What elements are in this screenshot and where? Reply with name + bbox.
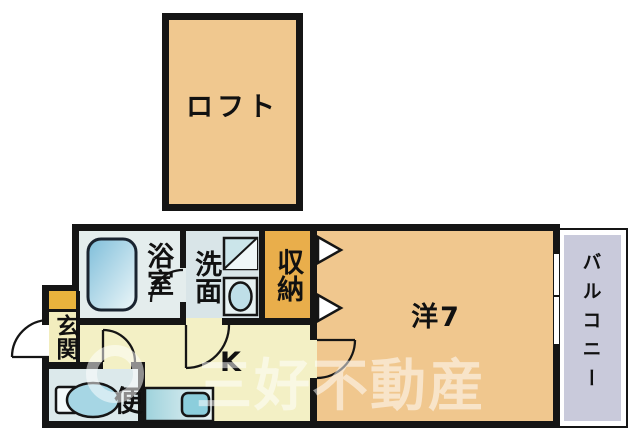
toilet-bowl <box>67 383 119 417</box>
loft-label: ロフト <box>162 93 303 122</box>
closet-door-triangle-top <box>318 237 341 263</box>
washroom-label: 洗面 <box>191 250 220 304</box>
fixtures-layer <box>0 0 640 435</box>
toilet-fixture <box>56 383 119 417</box>
bath-label: 浴室 <box>143 242 172 296</box>
toilet-label: 便 <box>114 386 143 417</box>
kitchen-counter <box>145 388 213 421</box>
balcony-label: バルコニー <box>580 252 601 397</box>
entrance-label: 玄関 <box>52 314 77 360</box>
western-room-label: 洋7 <box>396 303 476 332</box>
kitchen-sink <box>182 393 209 416</box>
closet-door-triangle-bottom <box>318 295 341 321</box>
washing-machine-pan <box>224 238 257 269</box>
entrance-door-arc <box>12 320 49 357</box>
vanity-sink <box>224 278 257 315</box>
kitchen-label: K <box>220 348 241 377</box>
toilet-door-arc <box>103 330 135 362</box>
closet-label: 収納 <box>273 248 302 302</box>
bathtub <box>88 239 136 310</box>
western-door-arc <box>317 340 355 378</box>
floorplan-canvas: ロフト <box>0 0 640 435</box>
